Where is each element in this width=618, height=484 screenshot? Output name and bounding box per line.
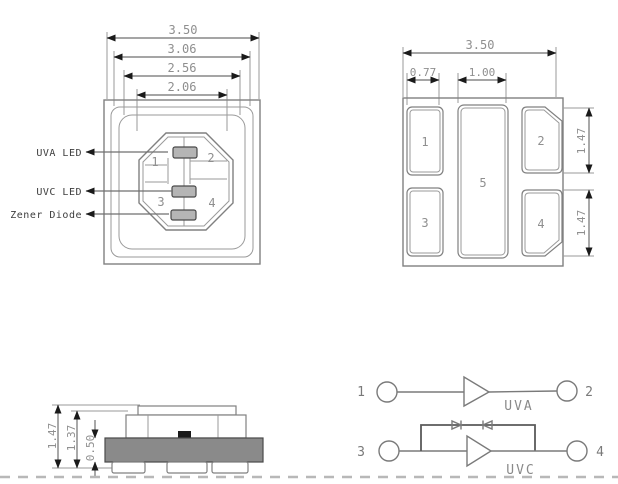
- dim-text-3-06: 3.06: [168, 42, 197, 56]
- circuit-diagram: 1 2 UVA 3 4 UVC: [357, 377, 604, 478]
- cavity-pad-number-4: 4: [208, 196, 215, 210]
- top-view: 3.50 3.06 2.56 2.06 1 2 3 4 UVA LED UVC …: [10, 23, 260, 264]
- uva-die: [173, 147, 197, 158]
- lens-profile: [138, 406, 236, 415]
- circuit-pin-1: 1: [357, 385, 365, 400]
- terminal-1: [377, 382, 397, 402]
- circuit-pin-4: 4: [596, 445, 604, 460]
- terminal-3: [379, 441, 399, 461]
- bottom-pad-view: 3.50 0.77 1.00 1 2 3 4 5 1.47 1.47: [403, 38, 594, 266]
- package-inner-outline-1: [111, 107, 253, 257]
- bottom-pad-left: [112, 462, 145, 473]
- dim-text-side-1-37: 1.37: [65, 425, 78, 452]
- dim-text-1-47-top: 1.47: [575, 128, 588, 155]
- dim-text-2-06: 2.06: [168, 80, 197, 94]
- zener-diode-label: Zener Diode: [10, 210, 82, 221]
- dim-text-1-47-bottom: 1.47: [575, 210, 588, 237]
- dim-text-2-56: 2.56: [168, 61, 197, 75]
- pad-number-1: 1: [421, 135, 428, 149]
- dim-text-1-00: 1.00: [469, 66, 496, 79]
- uvc-die: [172, 186, 196, 197]
- dim-text-side-1-47: 1.47: [46, 423, 59, 450]
- zener-branch-wire: [421, 425, 535, 451]
- pad-number-4: 4: [537, 217, 544, 231]
- uva-diode-symbol: [464, 377, 489, 406]
- drawing-svg: 3.50 3.06 2.56 2.06 1 2 3 4 UVA LED UVC …: [0, 0, 618, 484]
- dim-text-side-0-50: 0.50: [84, 435, 97, 462]
- package-outline: [104, 100, 260, 264]
- cavity-pad-number-3: 3: [157, 195, 164, 209]
- uva-circuit-label: UVA: [504, 399, 533, 414]
- circuit-pin-2: 2: [585, 385, 593, 400]
- bottom-pad-center: [167, 462, 207, 473]
- zener-die: [171, 210, 196, 220]
- package-inner-outline-2: [119, 115, 245, 249]
- led-package-drawing: 3.50 3.06 2.56 2.06 1 2 3 4 UVA LED UVC …: [0, 0, 618, 484]
- terminal-4: [567, 441, 587, 461]
- cavity-pad-number-1: 1: [151, 155, 158, 169]
- uvc-diode-symbol: [467, 436, 491, 466]
- bottom-pad-right: [212, 462, 248, 473]
- terminal-2: [557, 381, 577, 401]
- substrate-body: [105, 438, 263, 462]
- uvc-led-label: UVC LED: [36, 187, 82, 198]
- uva-wire-right: [489, 391, 557, 392]
- uva-led-label: UVA LED: [36, 148, 82, 159]
- side-view: 1.47 1.37 0.50: [46, 405, 263, 478]
- die-profile: [178, 431, 191, 438]
- dim-text-3-50: 3.50: [169, 23, 198, 37]
- pad-number-2: 2: [537, 134, 544, 148]
- pad-number-5: 5: [479, 176, 486, 190]
- dim-text-0-77: 0.77: [410, 66, 437, 79]
- cavity-pad-number-2: 2: [207, 151, 214, 165]
- pad-number-3: 3: [421, 216, 428, 230]
- circuit-pin-3: 3: [357, 445, 365, 460]
- dim-text-overall: 3.50: [466, 38, 495, 52]
